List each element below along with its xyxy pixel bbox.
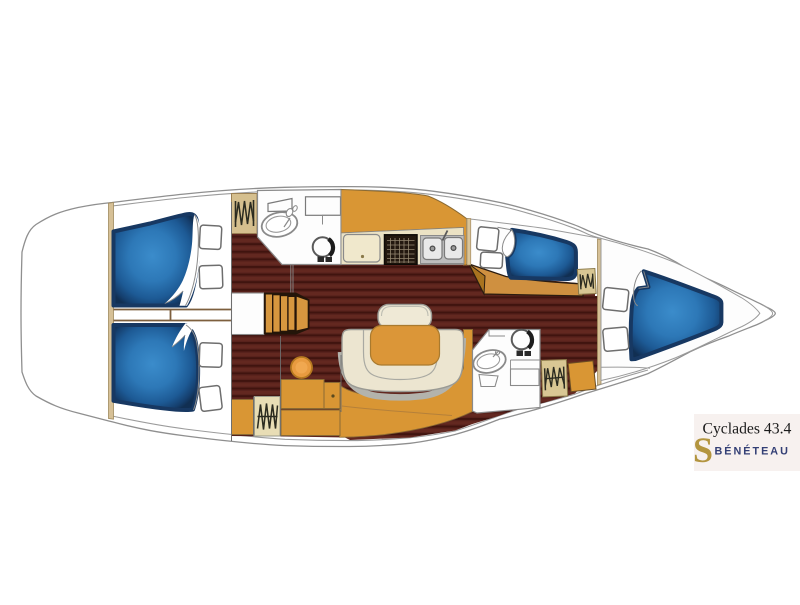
svg-text:BÉNÉTEAU: BÉNÉTEAU <box>715 445 790 458</box>
svg-text:Cyclades 43.4: Cyclades 43.4 <box>703 421 792 438</box>
svg-text:S: S <box>693 430 713 470</box>
